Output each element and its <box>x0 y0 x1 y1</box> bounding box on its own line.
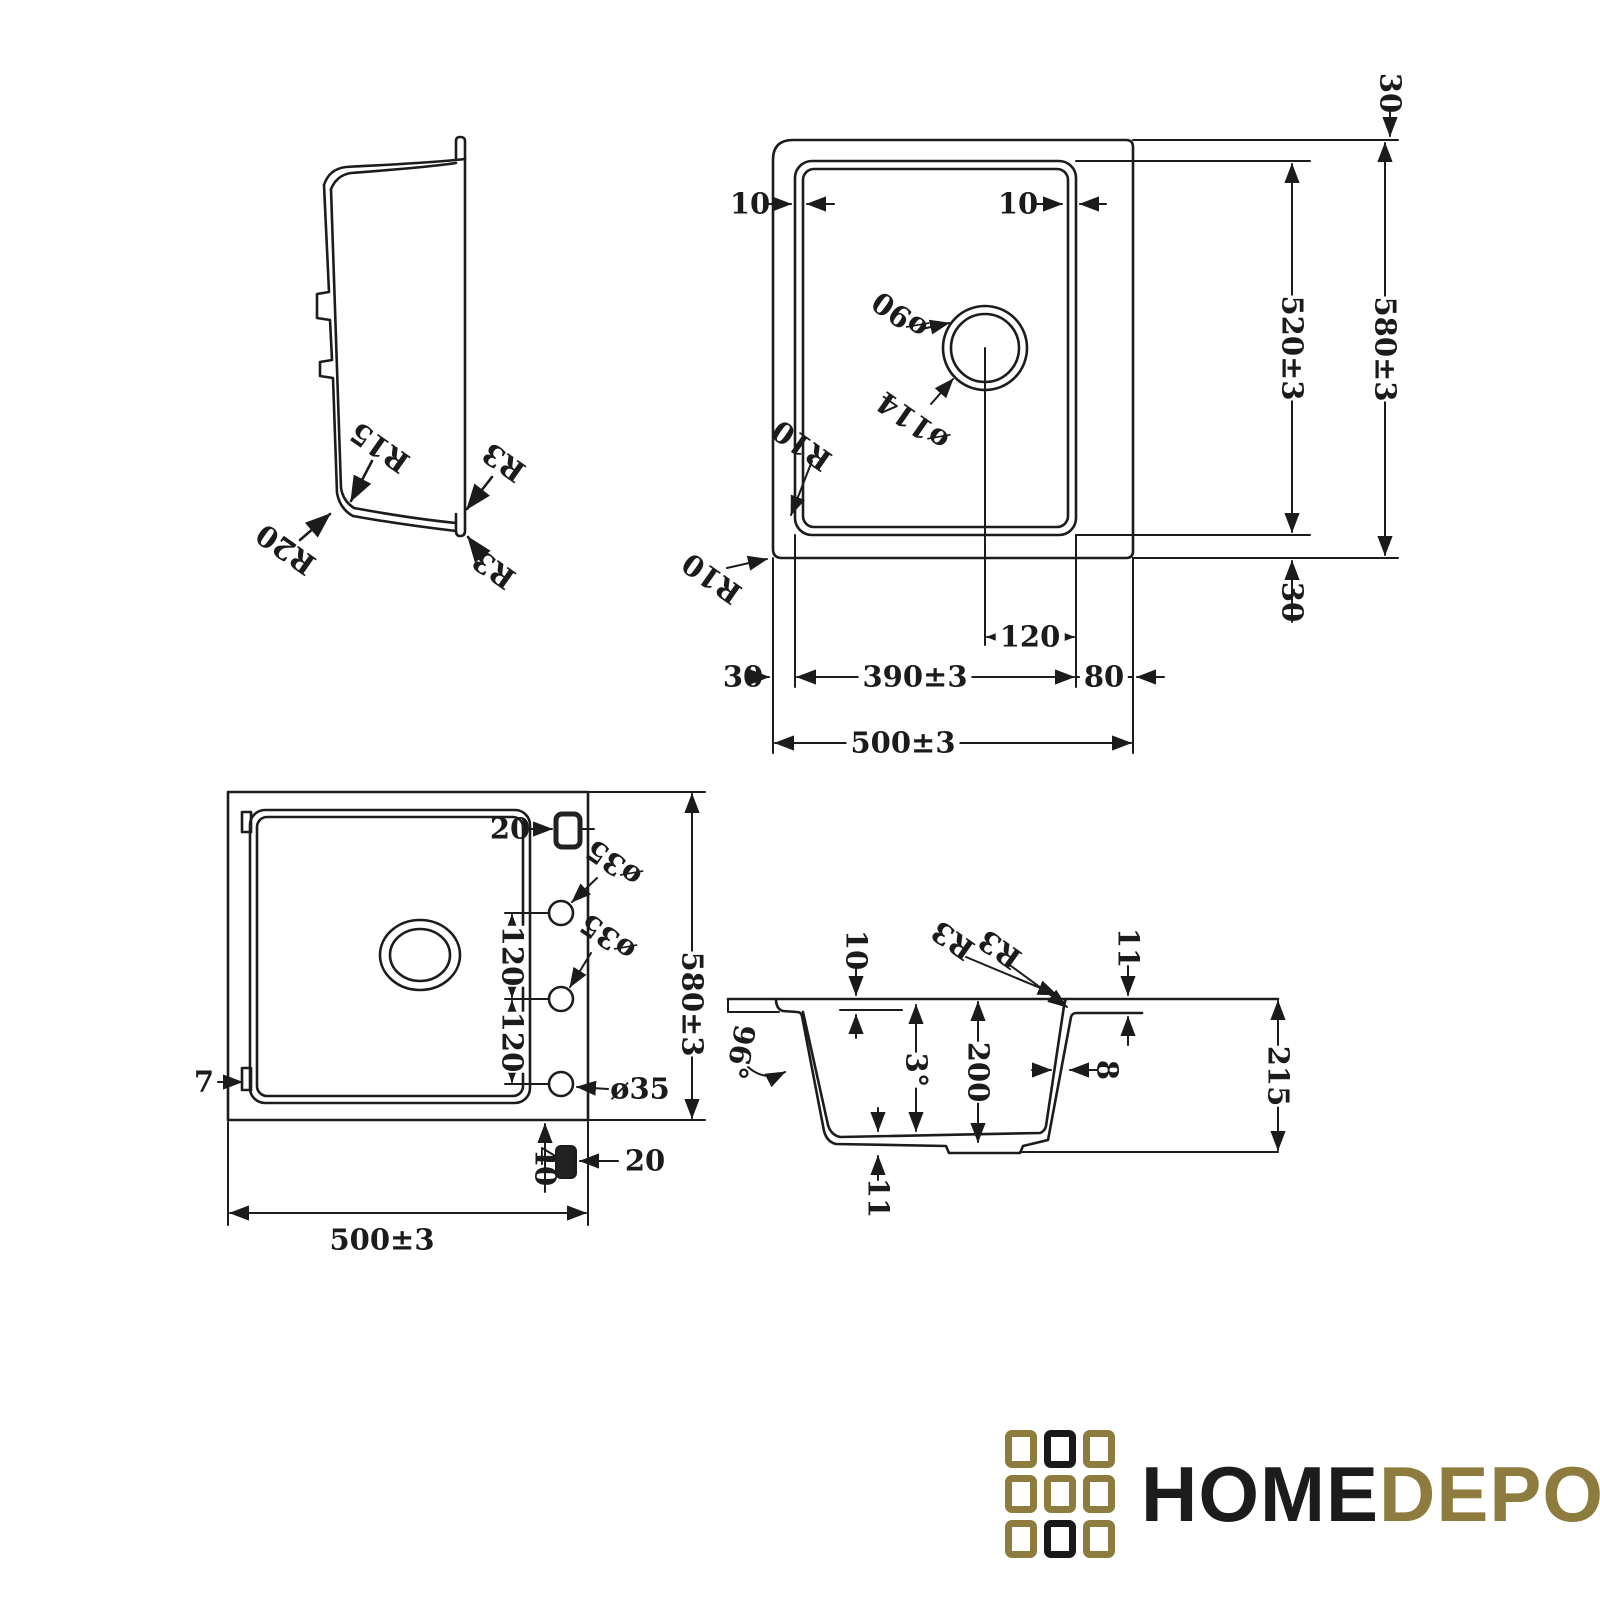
dim-base-thickness: 11 <box>864 1178 893 1218</box>
logo-grid-cell <box>1044 1430 1076 1468</box>
dim-wall-angle: 96° <box>721 1022 759 1081</box>
logo-text-secondary: DEPO <box>1379 1455 1600 1533</box>
dim-bowl-depth: 200 <box>962 1042 995 1103</box>
dim-body-width: 500±3 <box>846 729 959 758</box>
dim-clip-bottom: 20 <box>625 1147 665 1176</box>
logo-wordmark: HOME DEPO <box>1141 1455 1600 1533</box>
dim-drain-offset: 120 <box>996 623 1065 652</box>
dim-left-margin: 30 <box>723 663 763 692</box>
logo-grid-cell <box>1005 1430 1037 1468</box>
dim-body-width-bottom: 500±3 <box>329 1226 434 1255</box>
dim-hole-spacing-2: 120 <box>496 1012 529 1073</box>
technical-drawing-sheet: R15 R20 R3 R3 10 10 ø90 ø114 R10 R10 30 … <box>0 0 1600 1600</box>
dim-body-length-bottom: 580±3 <box>676 951 709 1056</box>
dim-edge-offset: 7 <box>194 1068 214 1097</box>
logo-grid-cell <box>1044 1475 1076 1513</box>
logo-grid-icon <box>1005 1430 1115 1558</box>
dim-bottom-margin: 30 <box>1278 582 1307 622</box>
dim-wall-thickness: 8 <box>1093 1060 1122 1080</box>
dim-overall-depth: 215 <box>1262 1046 1295 1107</box>
logo-grid-cell <box>1083 1430 1115 1468</box>
dim-tap-hole-3: ø35 <box>610 1075 670 1104</box>
logo-grid-cell <box>1083 1520 1115 1558</box>
brand-logo: HOME DEPO <box>1005 1430 1600 1558</box>
top-plan-view <box>727 112 1398 753</box>
dim-hole-spacing-1: 120 <box>496 926 529 987</box>
dim-flange-thickness: 11 <box>1114 928 1143 968</box>
dim-right-margin: 80 <box>1080 663 1128 692</box>
logo-grid-cell <box>1005 1475 1037 1513</box>
dim-bowl-width: 390±3 <box>858 663 971 692</box>
logo-text-primary: HOME <box>1141 1455 1379 1533</box>
side-profile-view <box>300 137 492 557</box>
dim-rim-depth: 10 <box>842 930 871 970</box>
dim-offset-left: 10 <box>730 190 770 219</box>
dim-bowl-length: 520±3 <box>1276 295 1309 400</box>
dim-bottom-offset: 40 <box>531 1146 560 1186</box>
cross-section-view <box>728 957 1278 1180</box>
logo-grid-cell <box>1044 1520 1076 1558</box>
dim-offset-right: 10 <box>998 190 1038 219</box>
dim-clip-top: 20 <box>490 815 530 844</box>
logo-grid-cell <box>1083 1475 1115 1513</box>
logo-grid-cell <box>1005 1520 1037 1558</box>
dim-top-margin: 30 <box>1376 73 1405 113</box>
dim-body-length: 580±3 <box>1369 296 1402 401</box>
dim-base-angle: 3° <box>900 1053 933 1088</box>
drawing-canvas <box>0 0 1600 1600</box>
